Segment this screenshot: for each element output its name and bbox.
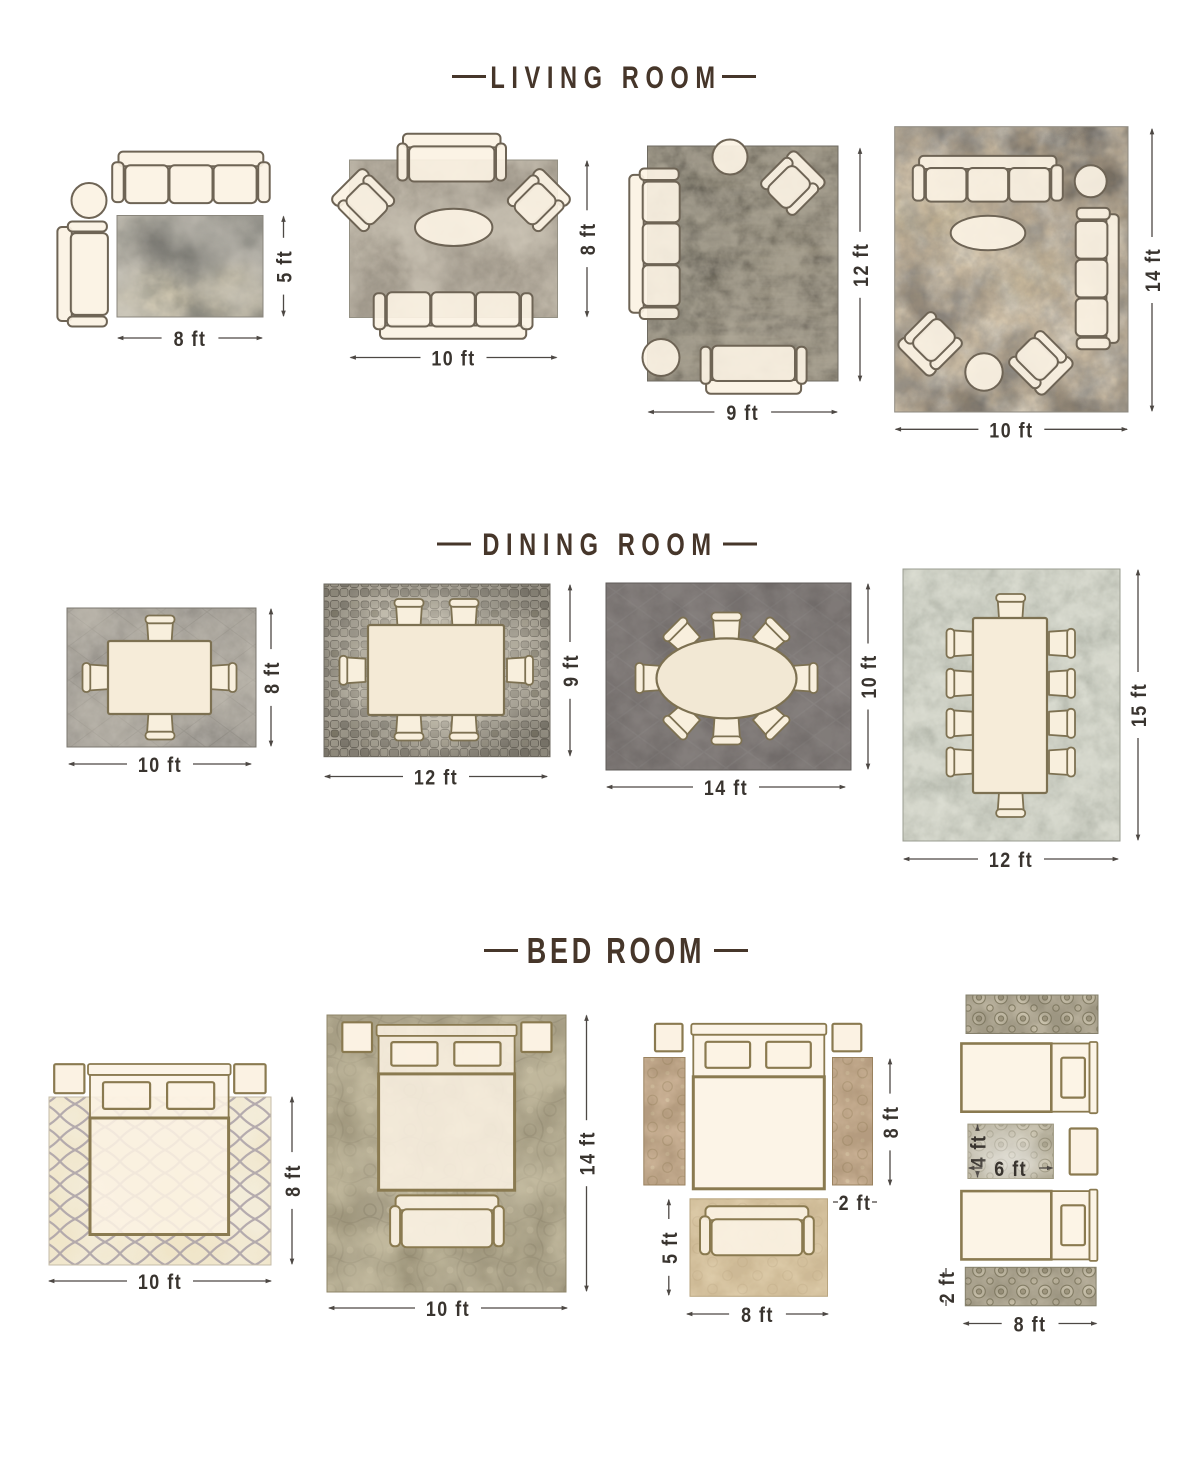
svg-text:9 ft: 9 ft	[726, 402, 759, 426]
svg-text:10 ft: 10 ft	[989, 419, 1033, 443]
svg-text:14 ft: 14 ft	[576, 1131, 600, 1175]
svg-text:8 ft: 8 ft	[880, 1106, 904, 1139]
svg-text:12 ft: 12 ft	[414, 766, 458, 790]
svg-text:12 ft: 12 ft	[850, 243, 874, 287]
svg-text:DINING ROOM: DINING ROOM	[482, 527, 717, 562]
svg-text:15 ft: 15 ft	[1128, 683, 1152, 727]
svg-text:10 ft: 10 ft	[138, 754, 182, 778]
svg-text:LIVING ROOM: LIVING ROOM	[490, 60, 721, 95]
svg-text:8 ft: 8 ft	[577, 222, 601, 255]
svg-text:2 ft: 2 ft	[839, 1192, 872, 1216]
svg-text:10 ft: 10 ft	[431, 347, 475, 371]
svg-text:9 ft: 9 ft	[560, 654, 584, 687]
svg-text:8 ft: 8 ft	[282, 1164, 306, 1197]
svg-text:5 ft: 5 ft	[273, 250, 297, 283]
svg-text:2 ft: 2 ft	[936, 1271, 960, 1304]
svg-text:10 ft: 10 ft	[426, 1298, 470, 1322]
svg-text:10 ft: 10 ft	[858, 654, 882, 698]
svg-text:14 ft: 14 ft	[704, 777, 748, 801]
svg-text:6 ft: 6 ft	[994, 1158, 1027, 1182]
svg-text:8 ft: 8 ft	[1014, 1313, 1047, 1337]
svg-text:8 ft: 8 ft	[261, 661, 285, 694]
svg-text:8 ft: 8 ft	[741, 1304, 774, 1328]
svg-text:12 ft: 12 ft	[989, 849, 1033, 873]
svg-text:14 ft: 14 ft	[1142, 248, 1166, 292]
svg-text:10 ft: 10 ft	[138, 1271, 182, 1295]
svg-text:BED ROOM: BED ROOM	[527, 930, 705, 971]
svg-text:5 ft: 5 ft	[658, 1231, 682, 1264]
svg-text:8 ft: 8 ft	[174, 328, 207, 352]
